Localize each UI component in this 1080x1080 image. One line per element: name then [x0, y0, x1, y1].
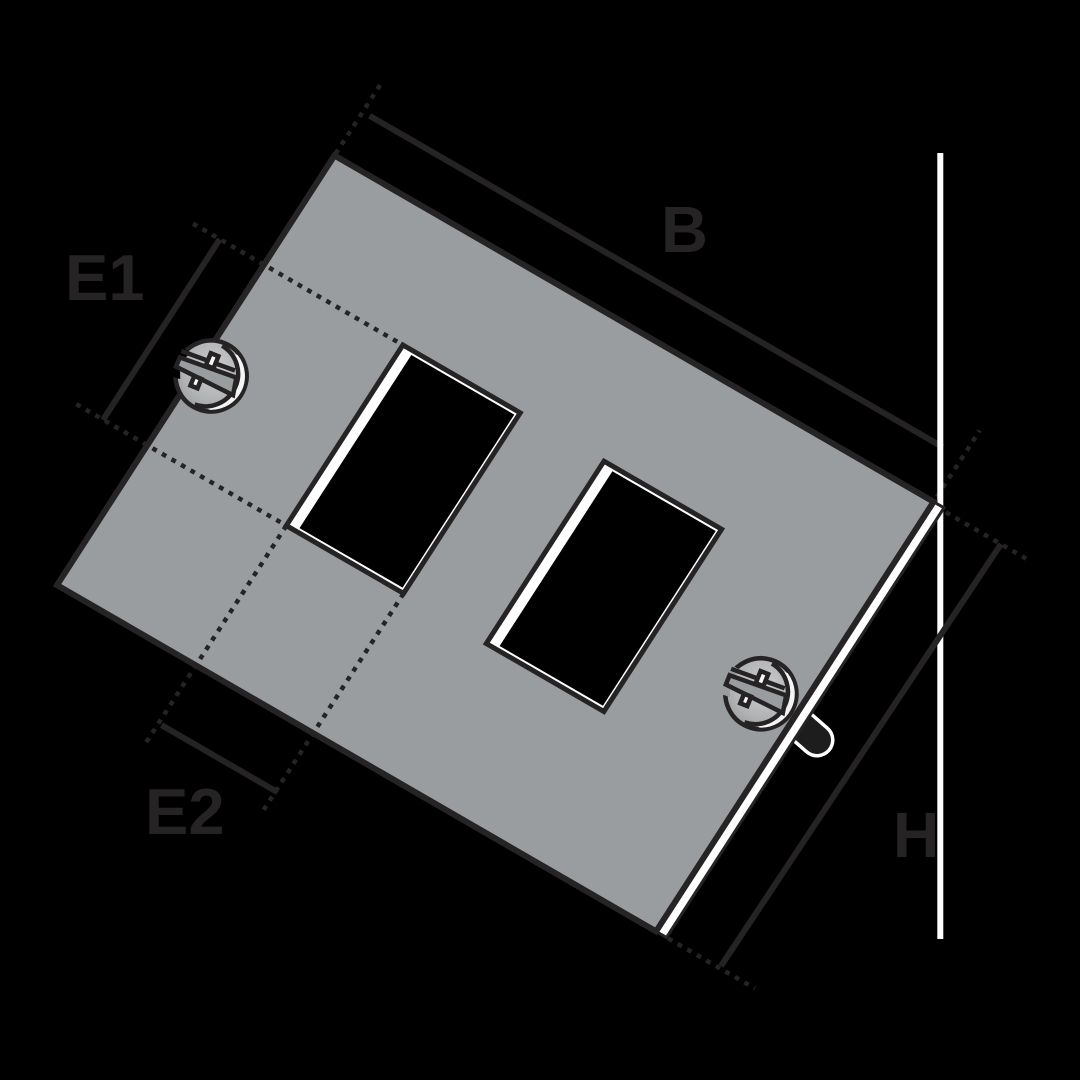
- svg-text:B: B: [661, 193, 708, 266]
- svg-text:E2: E2: [145, 775, 225, 848]
- svg-text:E1: E1: [65, 241, 145, 314]
- svg-text:H: H: [893, 799, 939, 871]
